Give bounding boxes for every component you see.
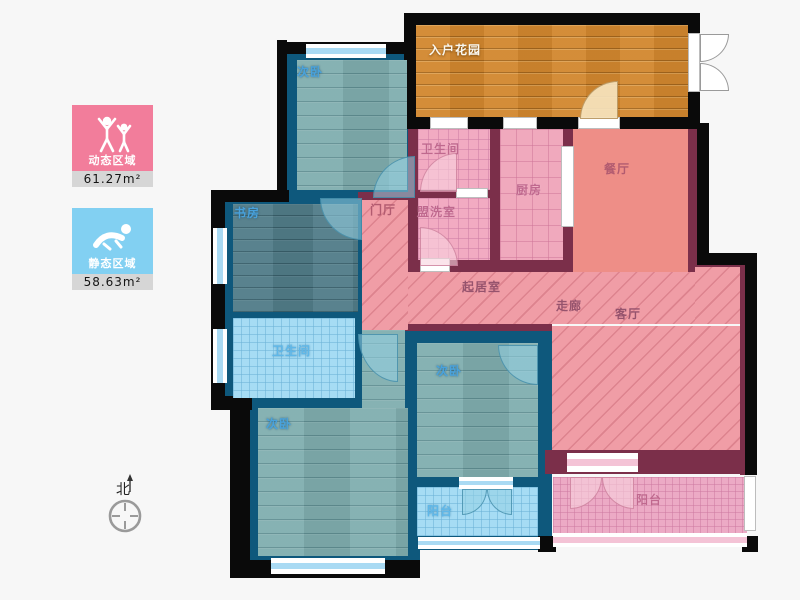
label-laundry: 盟洗室 [417,206,456,218]
window-bedroom-tl-top [306,44,386,58]
wall-bedroom-tl-left-black [277,40,287,202]
window-bedroom-bl-bottom [271,558,385,574]
door-gap-garden-pane [579,121,619,125]
label-living-room: 起居室 [462,281,501,293]
window-balcony-pink-bottom [553,533,747,547]
wall-right-black [745,253,757,475]
window-study-left-pane [217,228,222,284]
door-leaf-entry-lower [700,63,729,91]
window-garden-bath [430,117,468,129]
window-balcony-pink-bottom-pane [553,537,747,542]
label-bedroom-bl: 次卧 [266,418,292,430]
window-balcony-blue-bottom-pane [418,541,540,545]
label-study: 书房 [234,207,260,219]
window-bedroom-mid-sill-pane [459,481,513,485]
floor-dining [573,129,688,272]
door-leaf-entry-upper [700,34,729,62]
window-balcony-pink-right-pane [748,477,752,530]
label-balcony-pink: 阳台 [636,494,662,506]
window-bedroom-tl-top-pane [306,48,386,53]
window-bath-left-pane [217,329,222,383]
window-garden-bath-pane [431,121,467,125]
door-gap-garden-entry-pane [692,34,696,91]
floor-garden [416,25,688,117]
window-garden-kitchen [503,117,537,129]
wall-dining-right-maroon [688,125,697,264]
floorplan-viewer: 动态区域 61.27m² 静态区域 58.63m² 北 次卧入户花园卫生间厨 [0,0,800,600]
wall-dining-right-black [697,123,709,264]
floor-living-main [552,326,740,450]
floorplan: 次卧入户花园卫生间厨房餐厅门厅盟洗室书房卫生间次卧次卧阳台起居室走廊客厅阳台 [0,0,800,600]
door-sliding-kitchen [561,146,574,227]
label-bath-left: 卫生间 [272,345,311,357]
window-garden-kitchen-pane [504,121,536,125]
door-gap-bath-top [456,188,488,198]
wall-bedroom-bl-left-black [230,396,250,578]
door-sliding-kitchen-pane [566,147,570,226]
label-bath-top: 卫生间 [421,143,460,155]
window-bedroom-bl-bottom-pane [271,563,385,569]
floor-hall-right-ext [695,267,740,324]
floor-bath-left [233,318,355,398]
label-parlor: 客厅 [615,308,641,320]
window-balcony-pink-right [744,476,756,531]
label-bedroom-mid: 次卧 [436,365,462,377]
window-bedroom-mid-sill [459,477,513,489]
label-dining: 餐厅 [604,163,630,175]
label-bedroom-tl: 次卧 [297,66,323,78]
label-kitchen: 厨房 [516,184,542,196]
door-sill-living-balcony [567,453,638,472]
label-foyer: 门厅 [370,204,396,216]
door-gap-garden-entry [688,33,700,92]
label-balcony-blue: 阳台 [427,505,453,517]
door-sill-living-balcony-pane [567,459,638,466]
window-balcony-blue-bottom [418,537,540,549]
window-study-left [213,228,227,284]
floor-hall-band [408,272,695,324]
label-garden: 入户花园 [429,44,481,56]
window-bath-left [213,329,227,383]
door-gap-bath-top-pane [457,192,487,195]
label-corridor: 走廊 [556,300,582,312]
floor-foyer [362,200,408,330]
